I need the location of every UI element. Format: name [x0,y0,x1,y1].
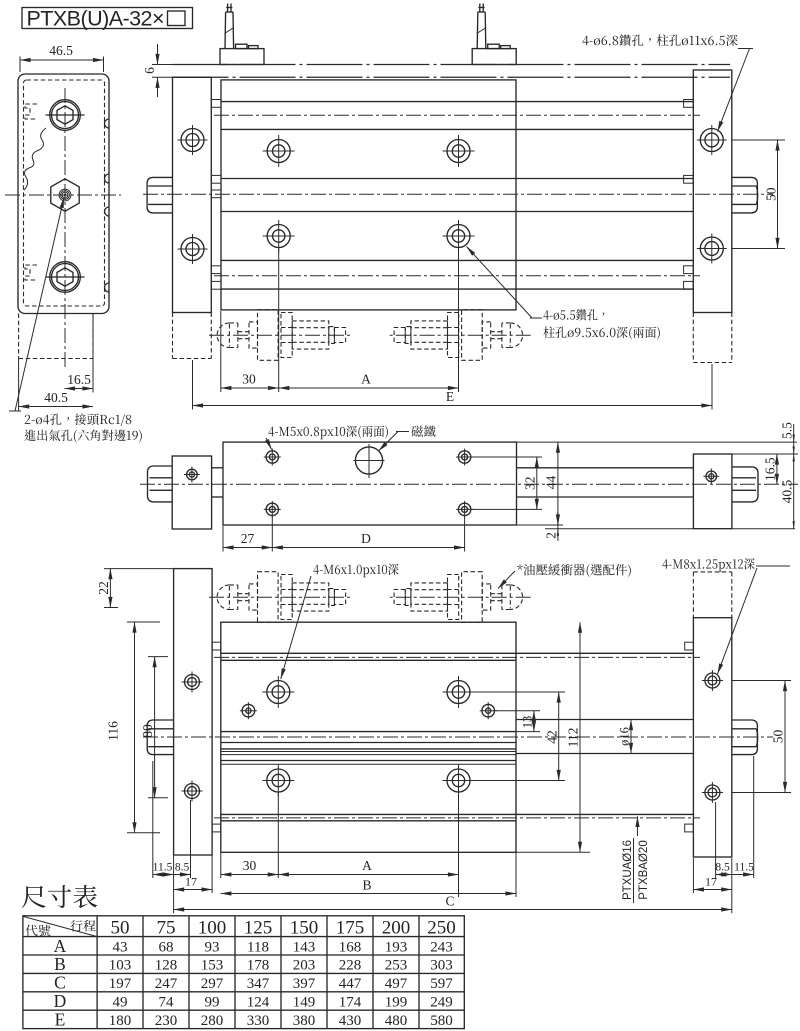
svg-text:16.5: 16.5 [763,457,778,481]
svg-text:11.5: 11.5 [734,862,754,874]
svg-text:347: 347 [247,976,270,992]
svg-text:16.5: 16.5 [67,372,91,387]
svg-text:40.5: 40.5 [779,479,794,503]
svg-text:44: 44 [544,476,559,490]
svg-text:480: 480 [385,1013,408,1029]
svg-text:PTXB(U)A-32×: PTXB(U)A-32× [27,7,165,31]
svg-text:247: 247 [155,976,178,992]
svg-text:5.5: 5.5 [780,422,795,439]
svg-text:330: 330 [247,1013,270,1029]
svg-text:93: 93 [205,939,220,955]
svg-text:197: 197 [109,976,132,992]
svg-text:6: 6 [142,67,157,74]
svg-text:50: 50 [111,918,130,939]
svg-text:22: 22 [96,581,111,595]
svg-text:11.5: 11.5 [153,862,173,874]
svg-text:128: 128 [155,958,178,974]
svg-text:397: 397 [293,976,316,992]
svg-text:200: 200 [382,918,411,939]
svg-text:74: 74 [159,995,175,1011]
svg-text:193: 193 [385,939,408,955]
svg-text:175: 175 [336,918,365,939]
svg-text:27: 27 [241,531,255,546]
svg-text:124: 124 [247,995,270,1011]
svg-text:250: 250 [427,918,456,939]
svg-text:32: 32 [523,476,538,490]
svg-text:125: 125 [244,918,273,939]
svg-text:149: 149 [293,995,316,1011]
svg-text:249: 249 [430,995,453,1011]
svg-text:168: 168 [339,939,362,955]
svg-text:297: 297 [201,976,224,992]
svg-text:230: 230 [155,1013,178,1029]
svg-text:30: 30 [243,858,257,873]
svg-text:E: E [55,1009,66,1029]
svg-text:E: E [446,389,454,404]
svg-text:13: 13 [521,716,535,729]
svg-text:D: D [361,531,371,546]
svg-text:580: 580 [430,1013,453,1029]
svg-text:2: 2 [544,532,559,539]
svg-text:280: 280 [201,1013,224,1029]
svg-text:174: 174 [339,995,362,1011]
svg-text:199: 199 [385,995,408,1011]
svg-text:203: 203 [293,958,316,974]
svg-text:ø16: ø16 [618,727,632,746]
svg-text:B: B [362,878,371,893]
svg-text:42: 42 [545,730,560,744]
svg-text:43: 43 [113,939,128,955]
svg-text:17: 17 [185,875,197,889]
svg-text:49: 49 [113,995,128,1011]
svg-text:153: 153 [201,958,224,974]
svg-text:8.5: 8.5 [175,862,190,874]
svg-text:180: 180 [109,1013,132,1029]
svg-text:116: 116 [106,721,121,741]
svg-text:46.5: 46.5 [49,43,73,58]
svg-text:112: 112 [566,728,581,748]
svg-text:PTXBAØ20: PTXBAØ20 [638,840,650,899]
svg-text:B: B [54,954,66,974]
svg-text:228: 228 [339,958,362,974]
svg-text:30: 30 [242,372,256,387]
svg-text:380: 380 [293,1013,316,1029]
svg-text:50: 50 [764,187,779,201]
svg-text:178: 178 [247,958,270,974]
svg-text:40.5: 40.5 [44,390,68,405]
svg-text:497: 497 [385,976,408,992]
svg-text:PTXUAØ16: PTXUAØ16 [622,840,634,900]
svg-text:A: A [54,936,67,956]
svg-text:C: C [445,894,454,909]
svg-text:99: 99 [205,995,220,1011]
svg-text:D: D [54,991,67,1011]
svg-text:8.5: 8.5 [715,862,730,874]
svg-text:430: 430 [339,1013,362,1029]
svg-text:303: 303 [430,958,453,974]
svg-text:253: 253 [385,958,408,974]
svg-text:100: 100 [198,918,227,939]
svg-text:143: 143 [293,939,316,955]
svg-text:243: 243 [430,939,453,955]
svg-text:C: C [54,973,66,993]
svg-text:17: 17 [705,875,717,889]
svg-text:597: 597 [430,976,453,992]
svg-text:68: 68 [159,939,174,955]
svg-text:50: 50 [771,730,786,744]
svg-text:118: 118 [247,939,269,955]
svg-text:75: 75 [157,918,176,939]
svg-text:A: A [361,372,371,387]
svg-text:447: 447 [339,976,362,992]
svg-text:80: 80 [140,724,155,738]
svg-text:A: A [362,858,372,873]
svg-text:103: 103 [109,958,132,974]
svg-text:150: 150 [290,918,319,939]
